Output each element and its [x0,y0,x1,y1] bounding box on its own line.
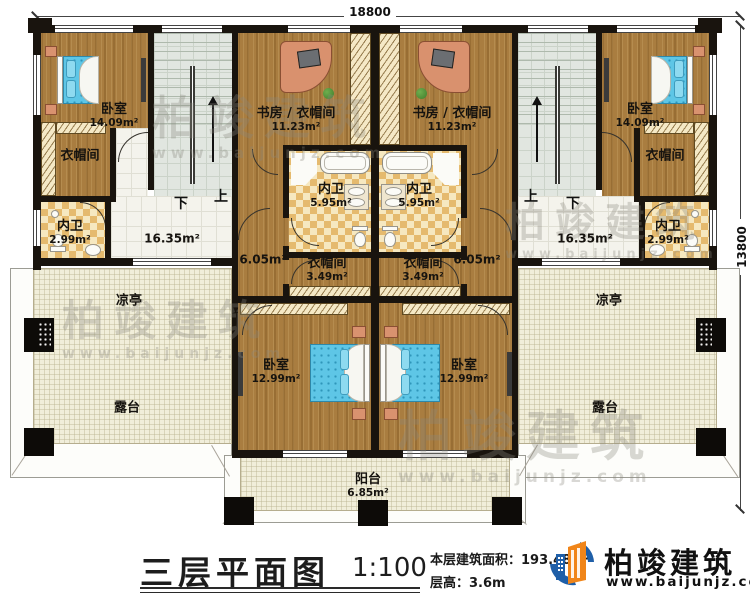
watermark: 柏竣建筑 www.baijunjz.com [62,300,285,361]
nightstand [352,326,366,338]
nightstand [45,104,57,115]
window [400,25,462,33]
corner-pier [698,18,722,33]
room-label-closet-mid-left: 衣帽间 3.49m² [306,257,347,283]
room-label-hall-right: 16.35m² [557,232,613,245]
wall-segment [371,25,379,458]
room-label-hall-left: 16.35m² [144,232,200,245]
stair-rail [555,66,560,184]
nightstand [352,408,366,420]
column [492,497,522,525]
nightstand [384,326,398,338]
column [224,497,254,525]
column [696,428,726,456]
room-label-terrace-right: 露台 [592,402,618,417]
wall-segment [105,196,111,266]
nightstand [384,408,398,420]
wall-segment [110,128,116,202]
bed-headboard [687,56,693,104]
column [24,428,54,456]
room-label-bath-mid-right: 内卫 5.95m² [398,183,439,209]
floor-plan: 18800 13800 [0,0,750,597]
column [696,318,726,352]
pillow [401,374,410,395]
room-label-bedroom-bottom-right: 卧室 12.99m² [440,359,489,385]
corner-pier [28,18,52,33]
toilet-tank [352,226,368,231]
window [33,210,41,246]
window [33,55,41,115]
top-dimension-label: 18800 [344,5,396,19]
plant [416,88,427,99]
column [358,500,388,526]
pillow [66,60,76,78]
toilet-bowl [384,232,396,247]
brand-logo-url: www.baijunjz.com [606,574,750,590]
window [55,25,133,33]
watermark-brand: 柏竣建筑 [398,410,654,464]
window [288,25,350,33]
pillow [401,349,410,370]
stair-direction-arrow [536,104,538,162]
toilet-bowl [354,232,366,247]
pillow [674,80,684,98]
room-label-pavilion-left: 凉亭 [116,295,142,310]
wall-segment [379,145,467,151]
drawing-scale: 1:100 [352,553,427,583]
window [162,25,222,33]
window [709,55,717,115]
room-label-closet-mid-right: 衣帽间 3.49m² [402,257,443,283]
computer-monitor [431,49,455,69]
wall-segment [596,25,602,190]
pillow [66,80,76,98]
window [528,25,588,33]
wardrobe [694,122,709,196]
pillow [340,374,349,395]
room-label-pavilion-right: 凉亭 [596,295,622,310]
vent-grill [699,322,712,348]
room-label-terrace-left: 露台 [114,402,140,417]
right-dimension-label: 13800 [735,219,749,275]
column [24,318,54,352]
stair-down-label-right: 下 [566,193,580,213]
stair-up-label-left: 上 [214,186,228,206]
stair-up-label-right: 上 [524,186,538,206]
room-label-bedroom-top-right: 卧室 14.09m² [616,103,665,129]
wall-segment [461,145,467,218]
wall-segment [379,296,518,303]
room-label-study-left: 书房 / 衣帽间 11.23m² [257,107,336,133]
wall-segment [634,128,640,202]
room-label-closet-top-right: 衣帽间 [645,150,684,165]
floor-drain [51,210,59,218]
bed-blanket [79,56,99,104]
pillow [674,60,684,78]
nightstand [45,46,57,57]
toilet-tank [382,226,398,231]
room-label-bedroom-bottom-left: 卧室 12.99m² [252,359,301,385]
brand-logo-icon [543,534,601,592]
window [617,25,695,33]
room-label-bath-top-right: 内卫 2.99m² [647,220,688,246]
title-underline [140,587,420,593]
tv [141,58,146,102]
watermark: 柏竣建筑 www.baijunjz.com [398,410,654,486]
watermark-url: www.baijunjz.com [398,469,654,486]
room-label-bedroom-top-left: 卧室 14.09m² [90,103,139,129]
tv [604,58,609,102]
wardrobe [41,122,56,196]
bed-headboard [364,344,370,402]
computer-monitor [297,49,321,69]
stair-arrow-head [532,96,542,105]
room-label-balcony: 阳台 6.85m² [347,473,388,499]
floor-height-text: 层高：3.6m [430,572,506,591]
watermark-brand: 柏竣建筑 [62,300,285,342]
room-label-closet-top-left: 衣帽间 [60,150,99,165]
room-label-bath-mid-left: 内卫 5.95m² [310,183,351,209]
room-label-bath-top-left: 内卫 2.99m² [49,220,90,246]
bathtub [382,152,432,174]
watermark-url: www.baijunjz.com [152,146,385,161]
room-label-corridor-left: 6.05m² [239,253,286,266]
pillow [340,349,349,370]
wall-segment [232,25,238,458]
french-door [283,450,347,458]
stair-down-label-left: 下 [174,193,188,213]
room-label-study-right: 书房 / 衣帽间 11.23m² [413,107,492,133]
french-door [133,258,211,266]
watermark-url: www.baijunjz.com [505,248,718,261]
nightstand [693,46,705,57]
vent-grill [38,322,51,348]
nightstand [693,104,705,115]
room-label-corridor-right: 6.05m² [453,253,500,266]
